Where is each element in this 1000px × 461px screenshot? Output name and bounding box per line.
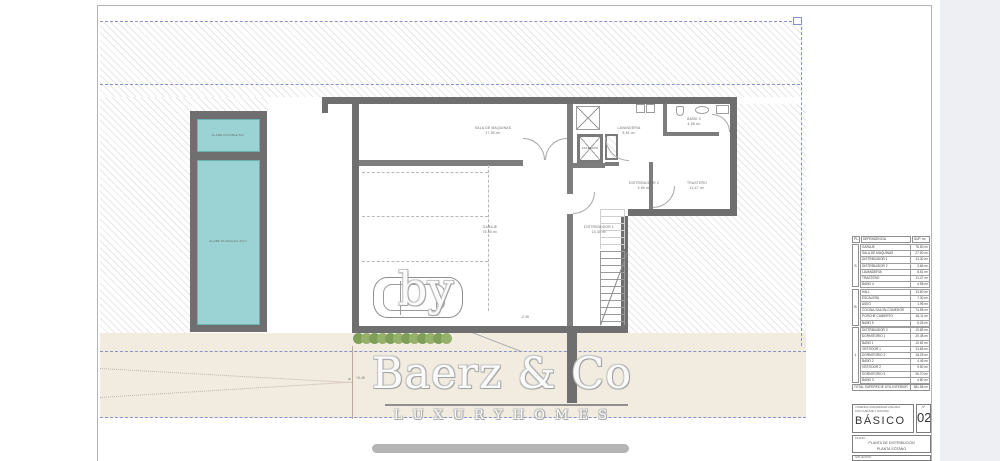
- room-label-bano4: BAÑO 44.58 m²: [687, 117, 701, 127]
- table-row: BAÑO 56.25 m²: [860, 320, 930, 326]
- level-annotation: -0.45: [521, 315, 529, 319]
- boundary-dash-right: [801, 22, 802, 346]
- elevator-label: ASCENSOR: [582, 147, 598, 151]
- partition-bano4-bottom: [663, 132, 719, 136]
- titleblock-situacion: SITUACIÓN:: [852, 455, 931, 461]
- wall-top: [322, 97, 737, 104]
- washer-icon: [646, 104, 655, 113]
- room-label-trastero: TRASTERO11.47 m²: [687, 181, 707, 191]
- partition-below-elevator: [567, 163, 605, 168]
- watermark-rule: [385, 404, 628, 406]
- table-total-row: TOTAL SUPERFICIE ÚTIL INTERIOR 381.58 m²: [852, 384, 930, 391]
- terrain-hatch-right-lower: [628, 216, 806, 346]
- boundary-corner-marker: [793, 17, 802, 25]
- terrain-hatch-pool-top: [190, 97, 268, 111]
- toilet-icon: [676, 106, 684, 116]
- partition-sala-right: [567, 104, 573, 160]
- room-label-dist1: DISTRIBUIDOR 113.30 m²: [584, 225, 614, 235]
- parking-bay-line: [362, 172, 488, 173]
- watermark-bar: [372, 444, 629, 453]
- vegetation-row: [356, 330, 476, 342]
- survey-point-icon: ×: [348, 377, 351, 383]
- room-label-garaje: GARAJE76.50 m²: [483, 225, 498, 235]
- sink-icon: [695, 106, 709, 114]
- titleblock-plan: PLANO: PLANTA DE DISTRIBUCIÓN PLANTA SÓT…: [852, 435, 931, 453]
- room-label-sala: SALA DE MAQUINAS27.50 m²: [475, 126, 511, 136]
- watermark-by: by: [398, 262, 453, 316]
- project-name-line2: CON GARAJE Y PISCINA: [855, 410, 911, 414]
- terrain-hatch-left: [100, 97, 190, 333]
- plan-title-line2: PLANTA SÓTANO: [855, 447, 928, 453]
- parking-bay-line: [362, 216, 488, 217]
- wall-right-upper: [730, 104, 737, 216]
- room-label-lavanderia: LAVANDERIA8.51 m²: [618, 126, 641, 136]
- wall-notch: [322, 97, 328, 113]
- setback-dash-upper: [100, 84, 800, 85]
- partition-lavanderia: [605, 162, 619, 166]
- areas-table-header: PL. DEPENDENCIA SUP. m²: [852, 236, 930, 243]
- wardrobe-icon: [576, 106, 600, 130]
- table-group-primera: 1 DISTRIBUIDOR 313.89 m² DORMITORIO 120.…: [852, 327, 930, 383]
- wall-left: [352, 104, 359, 333]
- outside-page-area: [940, 0, 1000, 461]
- table-row: BAÑO 44.58 m²: [860, 281, 930, 287]
- table-group-sotano: S GARAJE76.50 m² SALA DE MAQUINAS27.50 m…: [852, 244, 930, 287]
- wall-step: [628, 209, 737, 216]
- shower-icon: [716, 105, 729, 114]
- partition-distribuidor-lower: [567, 214, 573, 326]
- level-annotation: +0.45: [356, 376, 365, 380]
- room-label-dist2: DISTRIBUIDOR 23.66 m²: [629, 181, 659, 191]
- areas-table: PL. DEPENDENCIA SUP. m² S GARAJE76.50 m²…: [852, 236, 930, 391]
- ramp-edge-line: [352, 346, 353, 419]
- titleblock-number: Nº 02: [916, 404, 931, 433]
- tank1-label: ALJIBE POTABLE 6m³: [212, 133, 245, 137]
- watermark-tagline: L U X U R Y H O M E S: [368, 408, 636, 423]
- tank2-label: ALJIBE PLUVIALES 44m³: [209, 239, 247, 243]
- table-row: BAÑO 34.80 m²: [860, 377, 930, 383]
- table-group-baja: B HALL13.60 m² ESCALERA7.30 m² ASEO1.95 …: [852, 289, 930, 326]
- sheet-number: 02: [917, 410, 930, 425]
- phase-title: BÁSICO: [855, 415, 911, 427]
- partition-bano4-left: [663, 104, 667, 135]
- floor-plan-sheet: ALJIBE POTABLE 6m³ ALJIBE PLUVIALES 44m³…: [0, 0, 1000, 461]
- terrain-hatch-right: [731, 104, 806, 216]
- situacion-label: SITUACIÓN:: [855, 456, 928, 460]
- washer-icon: [636, 104, 645, 113]
- boundary-dash-top: [100, 21, 802, 22]
- terrain-hatch-top: [100, 22, 803, 97]
- partition-sala-garaje: [359, 160, 523, 166]
- titleblock-project: VIVIENDA UNIFAMILIAR AISLADA CON GARAJE …: [852, 404, 914, 433]
- watermark-brand: Baerz & Co: [368, 349, 636, 399]
- parking-bay-line: [488, 165, 489, 311]
